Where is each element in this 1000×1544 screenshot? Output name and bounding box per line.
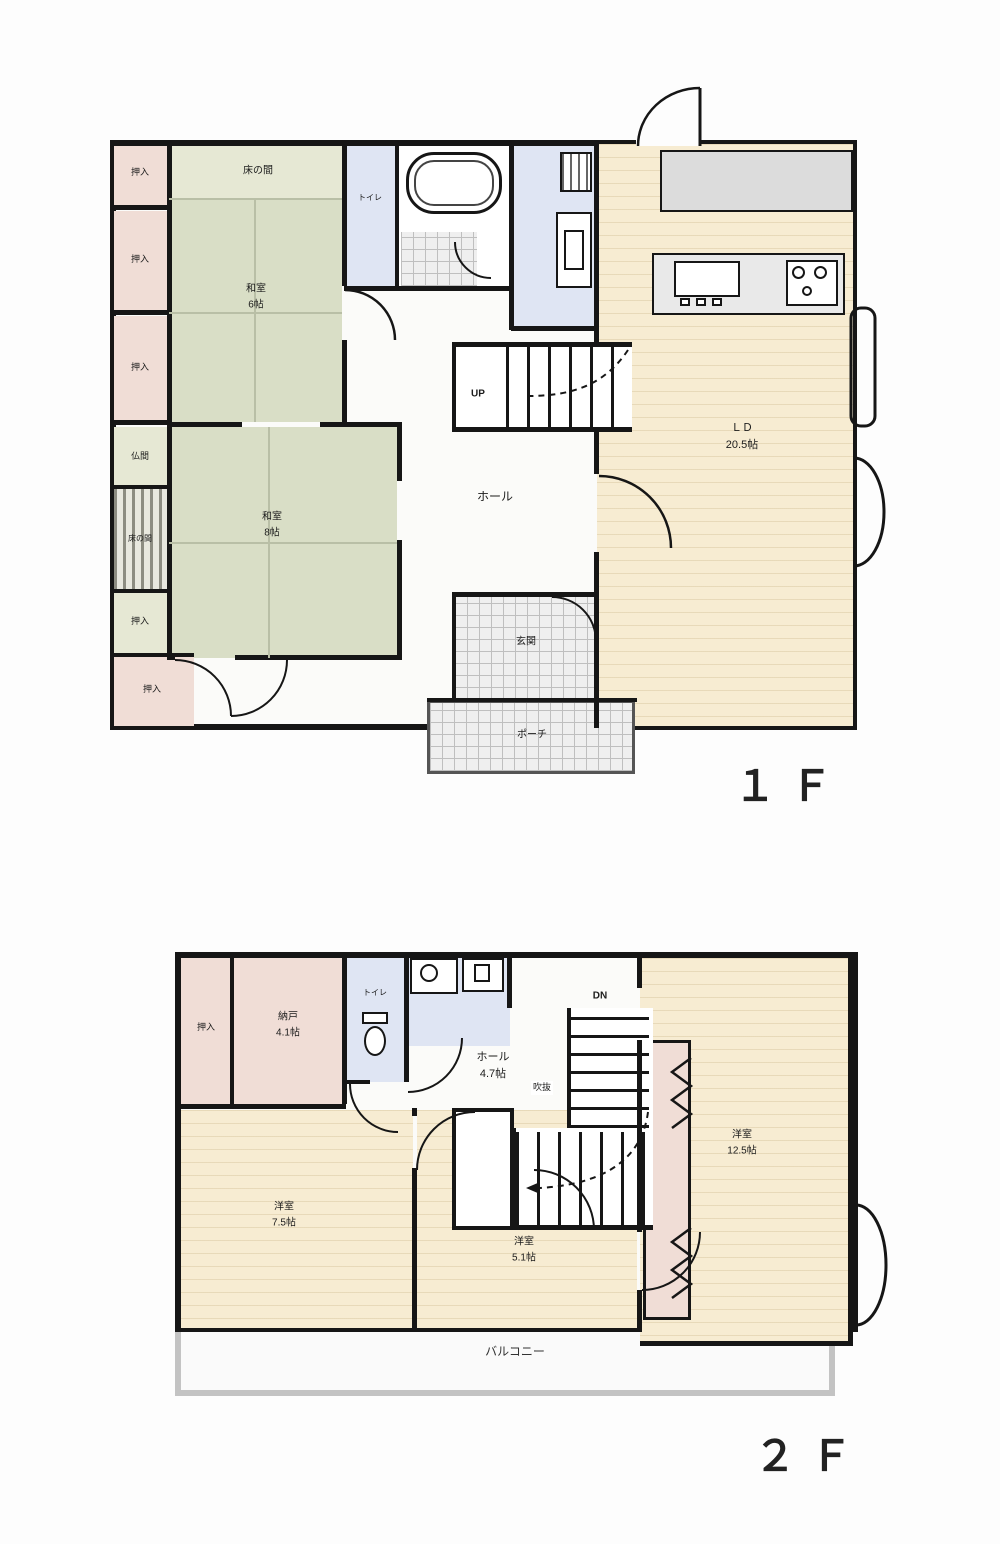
label-washitsu1: 和室 6帖 [246, 282, 266, 313]
label-oshiire-2: 押入 [131, 253, 149, 267]
label-oshiire-4: 押入 [143, 683, 161, 697]
label-oshiire-2f: 押入 [197, 1021, 215, 1035]
label-tokonoma-left: 床の間 [128, 533, 152, 545]
bow-window-1f [854, 458, 884, 566]
stove-burner-3 [802, 286, 812, 296]
room-yoshitsu-a [181, 1110, 413, 1328]
label-oshiire-5: 押入 [131, 615, 149, 629]
laundry-inner [474, 964, 490, 982]
floor2-title: ２Ｆ [754, 1423, 866, 1488]
stove-burner-2 [814, 266, 827, 279]
label-fukinuke: 吹抜 [531, 1081, 553, 1095]
basin-bowl [420, 964, 438, 982]
label-porch: ポーチ [517, 727, 547, 743]
label-oshiire-1: 押入 [131, 166, 149, 180]
label-toilet-1f: トイレ [358, 192, 382, 204]
label-hall-1f: ホール [477, 488, 513, 507]
label-genkan: 玄関 [516, 634, 536, 650]
kitchen-sink-icon [674, 261, 740, 297]
sink-knob-1 [680, 298, 690, 306]
toilet-bowl [364, 1026, 386, 1056]
sink-knob-3 [712, 298, 722, 306]
label-yoshitsu-c: 洋室 12.5帖 [727, 1128, 756, 1159]
label-ld: ＬＤ 20.5帖 [726, 420, 758, 454]
sink-knob-2 [696, 298, 706, 306]
label-washitsu2: 和室 8帖 [262, 510, 282, 541]
floorplan-canvas: 押入 押入 押入 床の間 和室 6帖 仏間 床の間 押入 押入 和室 8帖 トイ… [0, 0, 1000, 1544]
label-up: UP [471, 386, 485, 402]
label-yoshitsu-b: 洋室 5.1帖 [512, 1235, 536, 1266]
bathtub-inner [414, 160, 494, 206]
label-tokonoma-top: 床の間 [243, 163, 273, 179]
label-balcony: バルコニー [485, 1343, 545, 1362]
stairs-2f-lower-treads [516, 1132, 649, 1225]
label-dn: DN [593, 988, 607, 1004]
label-yoshitsu-a: 洋室 7.5帖 [272, 1200, 296, 1231]
toilet-icon [362, 1012, 388, 1024]
vanity-bowl [564, 230, 584, 270]
label-butsuma: 仏間 [131, 450, 149, 464]
stove-burner-1 [792, 266, 805, 279]
room-toilet-1f [344, 146, 395, 288]
stairs-1f-treads [506, 347, 630, 427]
label-nando: 納戸 4.1帖 [276, 1010, 300, 1041]
kitchen-back-counter [660, 150, 853, 212]
label-hall-2f: ホール 4.7帖 [477, 1049, 510, 1083]
label-toilet-2f: トイレ [363, 987, 387, 999]
void-box [452, 1108, 514, 1230]
label-oshiire-3: 押入 [131, 361, 149, 375]
floor1-title: １Ｆ [734, 753, 846, 818]
bow-window-2f [856, 1205, 886, 1325]
bath-tile-floor [401, 232, 477, 286]
washing-machine-icon [560, 152, 592, 192]
